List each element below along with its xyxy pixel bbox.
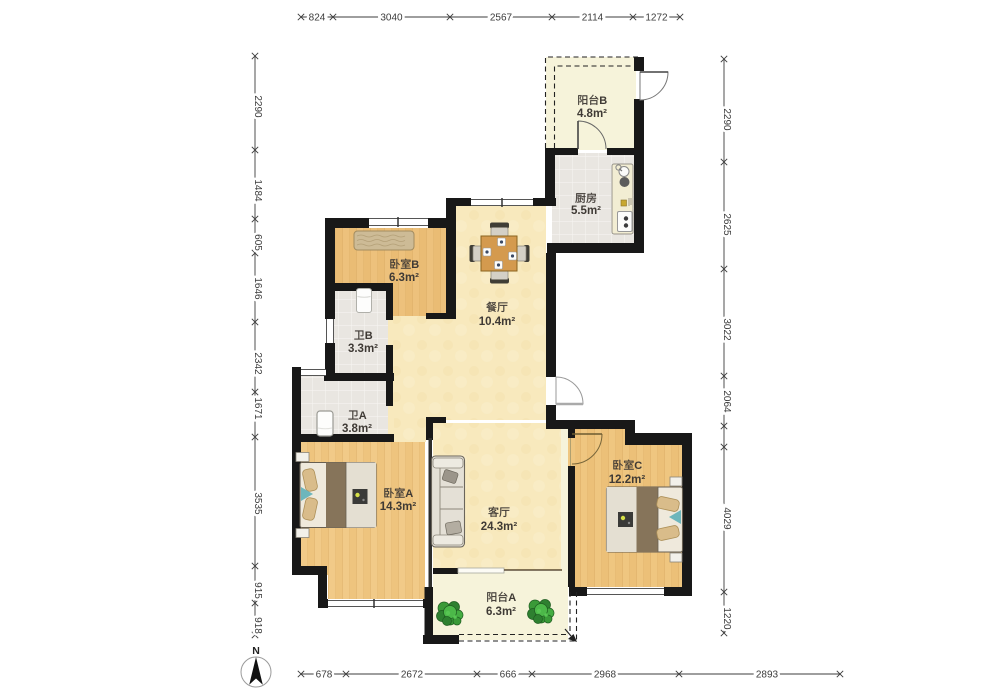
svg-text:3022: 3022 [721,318,732,341]
svg-text:4029: 4029 [721,507,732,530]
svg-text:1671: 1671 [252,397,263,420]
svg-text:2625: 2625 [721,213,732,236]
svg-text:A: A [359,410,367,422]
svg-text:678: 678 [316,670,333,681]
svg-text:2064: 2064 [721,390,732,413]
svg-text:6.3m²: 6.3m² [389,272,419,284]
svg-text:1272: 1272 [645,13,668,24]
svg-text:6.3m²: 6.3m² [486,606,516,618]
svg-text:A: A [508,592,516,604]
svg-text:918: 918 [252,617,263,634]
svg-text:12.2m²: 12.2m² [609,474,646,486]
svg-text:2290: 2290 [252,95,263,118]
svg-text:B: B [365,330,373,342]
svg-text:2672: 2672 [401,670,424,681]
svg-text:2342: 2342 [252,352,263,375]
svg-text:24.3m²: 24.3m² [481,521,518,533]
svg-text:666: 666 [500,670,517,681]
svg-text:B: B [599,95,607,107]
svg-text:3535: 3535 [252,492,263,515]
svg-text:N: N [252,645,260,657]
svg-text:B: B [411,259,419,271]
svg-text:824: 824 [309,13,326,24]
svg-text:2567: 2567 [490,13,513,24]
svg-text:14.3m²: 14.3m² [380,501,417,513]
svg-text:3040: 3040 [380,13,403,24]
svg-text:1646: 1646 [252,277,263,300]
svg-text:5.5m²: 5.5m² [571,205,601,217]
svg-text:605: 605 [252,234,263,251]
svg-text:1220: 1220 [721,607,732,630]
svg-text:2893: 2893 [756,670,779,681]
svg-text:2968: 2968 [594,670,617,681]
svg-text:4.8m²: 4.8m² [577,108,607,120]
svg-text:C: C [634,460,642,472]
svg-text:915: 915 [252,582,263,599]
svg-text:2114: 2114 [582,13,604,24]
svg-text:3.8m²: 3.8m² [342,423,372,435]
svg-text:10.4m²: 10.4m² [479,316,516,328]
svg-text:A: A [405,488,413,500]
svg-text:2290: 2290 [721,108,732,131]
svg-text:1484: 1484 [252,179,263,202]
svg-text:3.3m²: 3.3m² [348,343,378,355]
